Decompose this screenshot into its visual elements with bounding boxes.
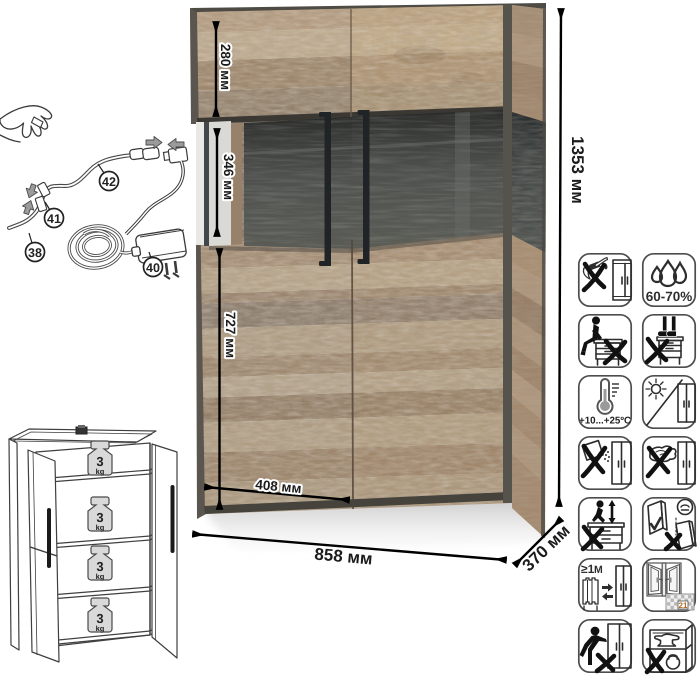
svg-text:M: M <box>594 564 603 576</box>
svg-text:+10...+25ºC: +10...+25ºC <box>579 416 631 427</box>
svg-text:42: 42 <box>102 175 116 189</box>
svg-text:40: 40 <box>146 261 160 275</box>
svg-text:38: 38 <box>28 246 42 260</box>
svg-text:1353 мм: 1353 мм <box>568 136 587 204</box>
svg-text:727 мм: 727 мм <box>223 312 238 358</box>
svg-text:kg: kg <box>96 572 105 581</box>
svg-text:280 мм: 280 мм <box>218 44 233 90</box>
svg-text:346 мм: 346 мм <box>221 154 236 200</box>
svg-text:kg: kg <box>96 523 105 532</box>
svg-text:60-70%: 60-70% <box>646 289 693 304</box>
svg-text:41: 41 <box>47 212 61 226</box>
svg-text:21: 21 <box>679 601 688 610</box>
svg-text:≥1: ≥1 <box>581 562 595 576</box>
svg-text:kg: kg <box>96 467 105 476</box>
svg-text:kg: kg <box>96 624 105 633</box>
